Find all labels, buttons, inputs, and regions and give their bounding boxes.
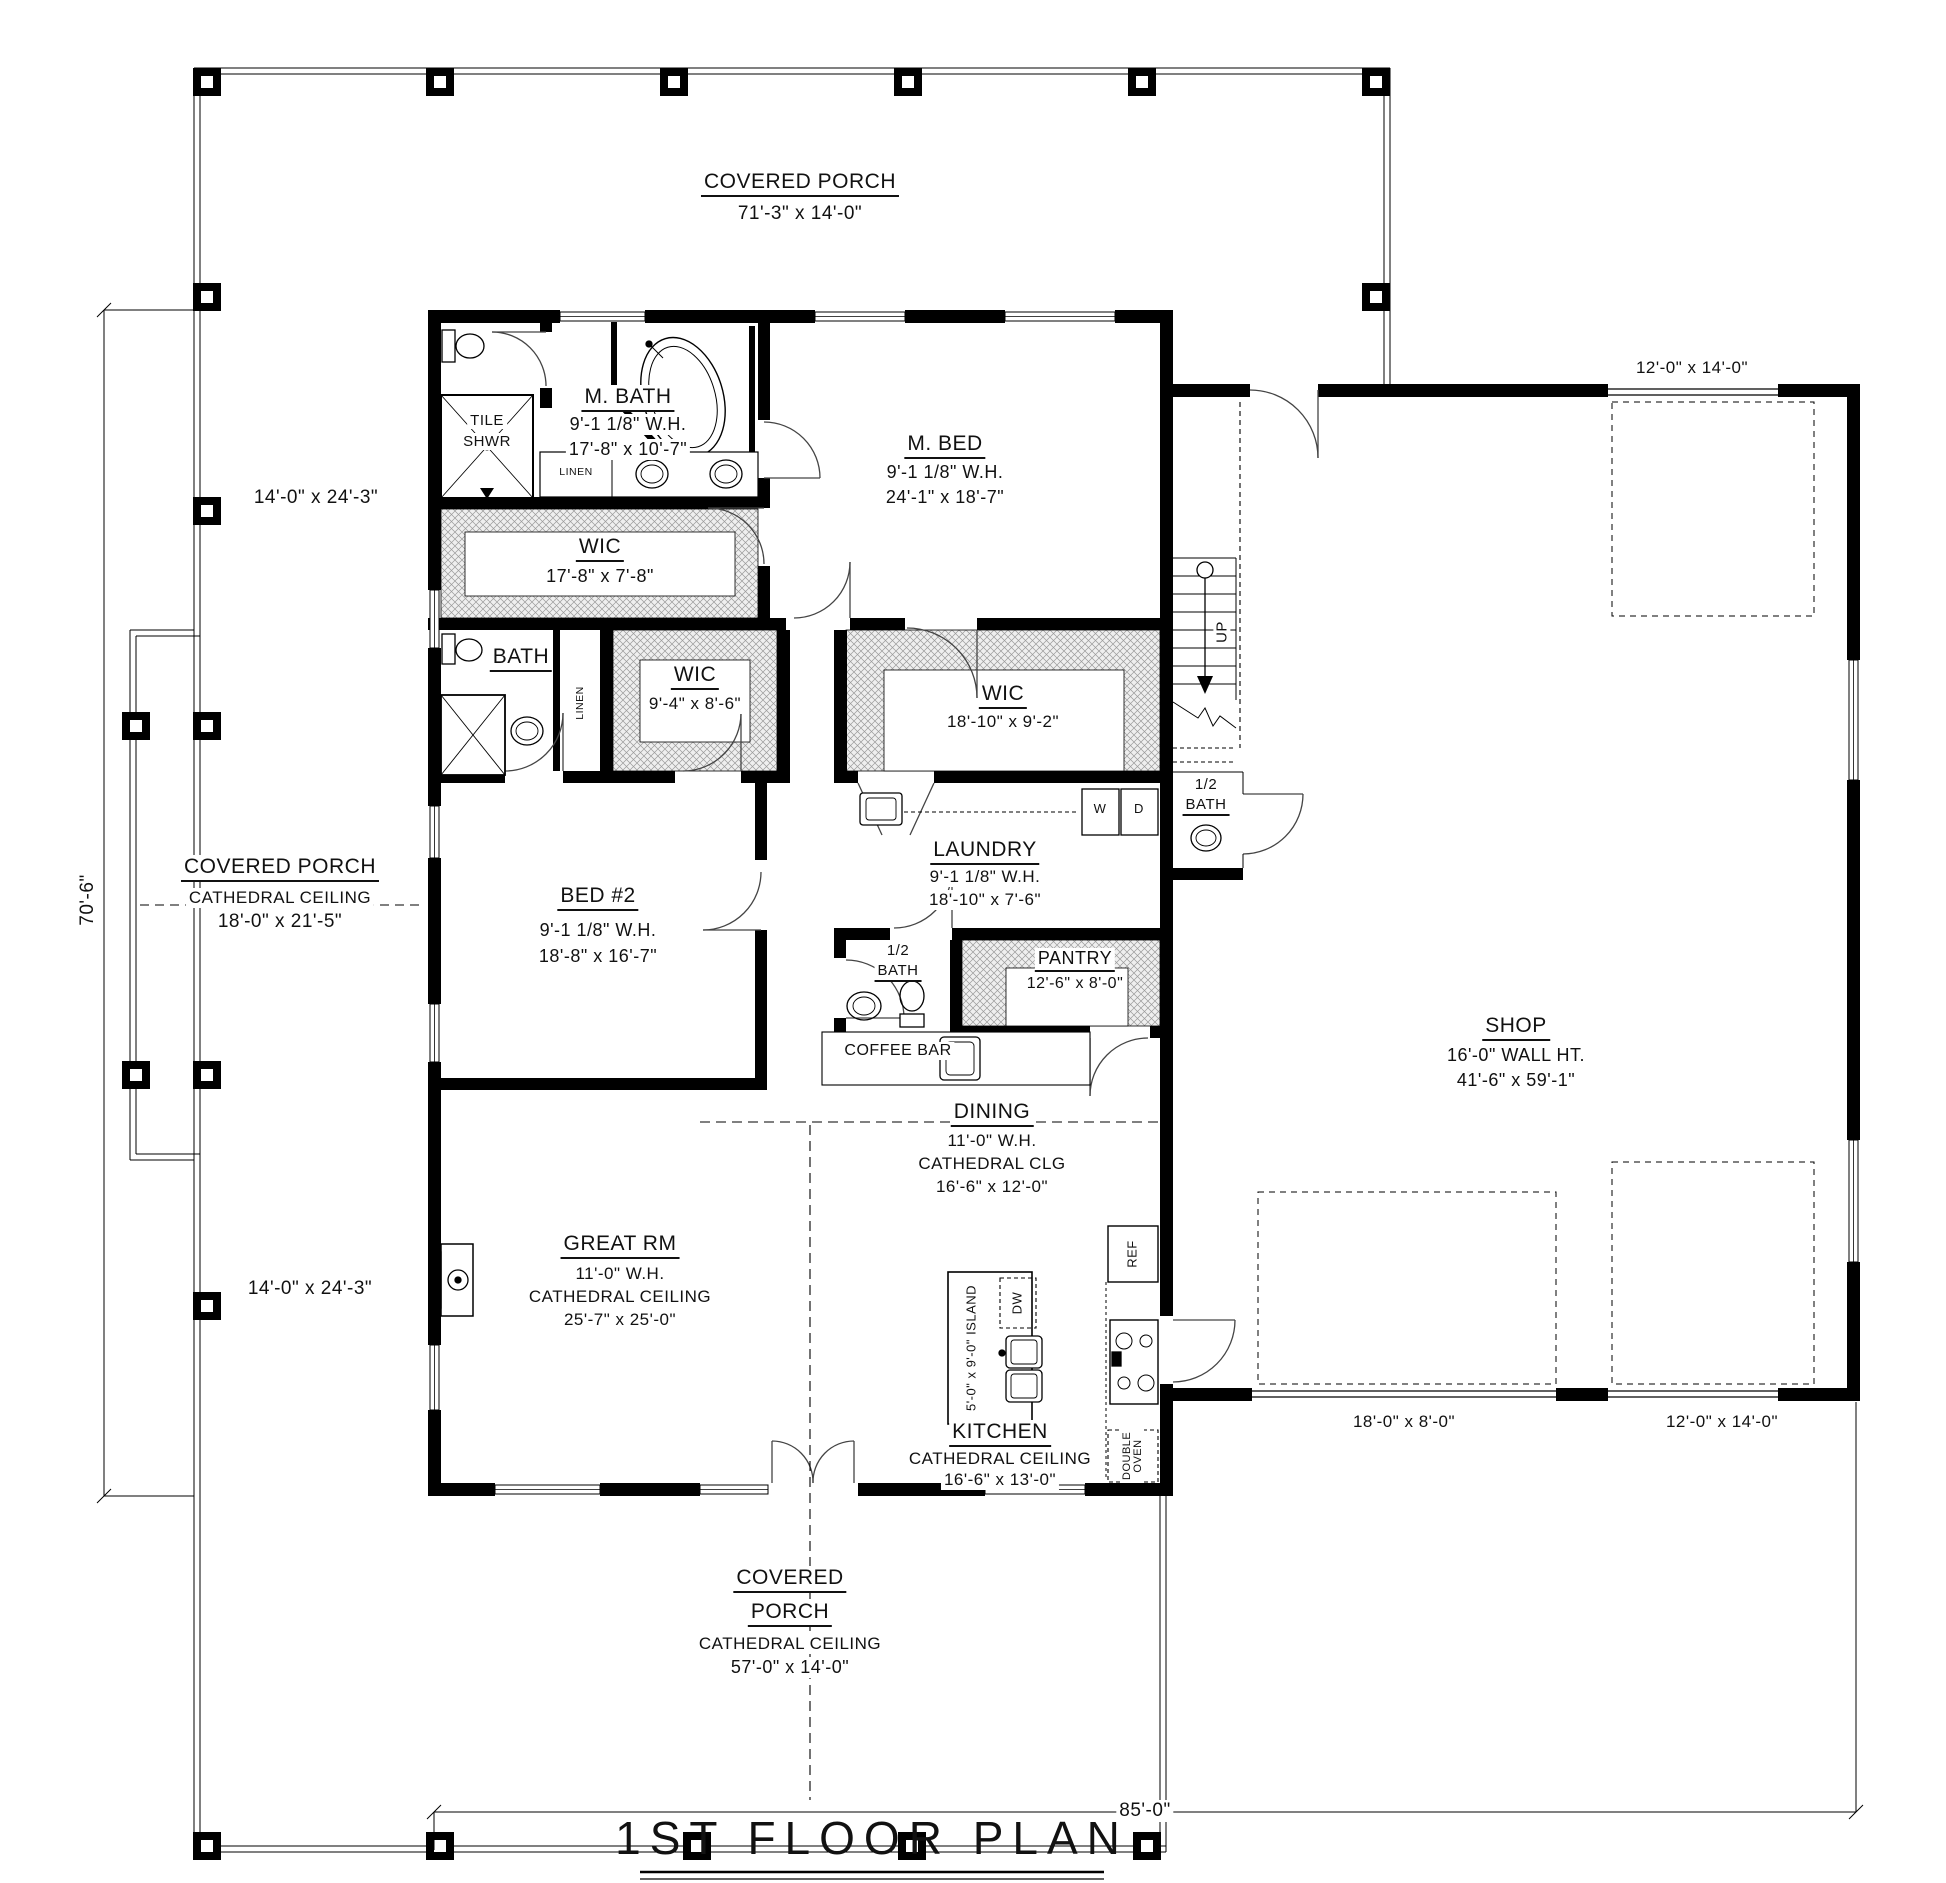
room-greatrm-name: GREAT RM	[561, 1232, 680, 1259]
room-shop-name: SHOP	[1482, 1014, 1550, 1041]
tile-shower-line2: SHWR	[460, 433, 514, 450]
porch-bottom-size: 57'-0" x 14'-0"	[728, 1657, 852, 1678]
room-bed2-wh: 9'-1 1/8" W.H.	[537, 920, 660, 941]
room-mbath-name: M. BATH	[581, 385, 674, 412]
dim-shop-door-bottom-right: 12'-0" x 14'-0"	[1663, 1412, 1781, 1432]
refrigerator-label: REF	[1126, 1237, 1141, 1271]
dim-porch-lower-left: 14'-0" x 24'-3"	[245, 1278, 375, 1300]
coffee-bar-label: COFFEE BAR	[841, 1042, 954, 1060]
room-laundry-size: 18'-10" x 7'-6"	[926, 890, 1044, 910]
room-bed2-name: BED #2	[557, 884, 638, 911]
room-shop-size: 41'-6" x 59'-1"	[1454, 1070, 1578, 1091]
room-mbath-wh: 9'-1 1/8" W.H.	[567, 414, 690, 435]
room-wic-master-name: WIC	[576, 535, 624, 562]
floor-plan-drawing	[0, 0, 1946, 1883]
room-wic3-name: WIC	[979, 682, 1027, 709]
room-dining-wh: 11'-0" W.H.	[944, 1131, 1039, 1151]
room-greatrm-wh: 11'-0" W.H.	[572, 1264, 667, 1284]
tile-shower-line1: TILE	[467, 412, 507, 429]
half-bath-main-line2: BATH	[875, 962, 922, 982]
stairs	[1173, 558, 1243, 868]
dimension-lines	[97, 303, 1863, 1879]
dim-shop-door-bottom-left: 18'-0" x 8'-0"	[1350, 1412, 1458, 1432]
room-shop-wh: 16'-0" WALL HT.	[1444, 1045, 1588, 1066]
room-kitchen-size: 16'-6" x 13'-0"	[941, 1470, 1059, 1490]
room-kitchen-ceiling: CATHEDRAL CEILING	[906, 1449, 1094, 1469]
porch-left-name: COVERED PORCH	[181, 855, 379, 882]
room-mbed-size: 24'-1" x 18'-7"	[883, 487, 1007, 508]
linen-master-label: LINEN	[556, 466, 595, 478]
dryer-label: D	[1131, 802, 1147, 817]
porch-bottom-name1: COVERED	[733, 1566, 846, 1593]
room-dining-size: 16'-6" x 12'-0"	[933, 1177, 1051, 1197]
dim-overall-depth: 70'-6"	[77, 871, 99, 928]
room-dining-name: DINING	[951, 1100, 1034, 1127]
room-wic2-size: 9'-4" x 8'-6"	[646, 694, 744, 714]
dim-shop-door-top: 12'-0" x 14'-0"	[1633, 358, 1751, 378]
porch-top-name: COVERED PORCH	[701, 170, 899, 197]
room-mbath-size: 17'-8" x 10'-7"	[566, 439, 690, 460]
room-bed2-size: 18'-8" x 16'-7"	[536, 946, 660, 967]
stairs-up-label: UP	[1213, 618, 1230, 646]
floor-plan-sheet: COVERED PORCH 71'-3" x 14'-0" 14'-0" x 2…	[0, 0, 1946, 1883]
washer-label: W	[1091, 802, 1110, 817]
half-bath-stairs-line1: 1/2	[1192, 776, 1220, 793]
porch-left-size: 18'-0" x 21'-5"	[215, 911, 345, 933]
room-dining-ceiling: CATHEDRAL CLG	[915, 1154, 1068, 1174]
room-greatrm-size: 25'-7" x 25'-0"	[561, 1310, 679, 1330]
porch-top-size: 71'-3" x 14'-0"	[735, 203, 865, 225]
room-wic2-name: WIC	[671, 663, 719, 690]
room-laundry-name: LAUNDRY	[930, 838, 1039, 865]
room-bath-name: BATH	[490, 645, 552, 672]
dishwasher-label: DW	[1011, 1289, 1026, 1318]
fixtures	[432, 322, 1221, 1482]
double-oven-label: DOUBLE OVEN	[1122, 1429, 1144, 1483]
porch-bottom-ceiling: CATHEDRAL CEILING	[696, 1634, 884, 1654]
room-wic-master-size: 17'-8" x 7'-8"	[543, 566, 657, 587]
island-label: 5'-0" x 9'-0" ISLAND	[965, 1282, 980, 1414]
room-laundry-wh: 9'-1 1/8" W.H.	[927, 867, 1044, 887]
room-mbed-wh: 9'-1 1/8" W.H.	[884, 462, 1007, 483]
half-bath-main-line1: 1/2	[884, 942, 912, 959]
linen-hall-label: LINEN	[574, 683, 586, 722]
porch-bottom-name2: PORCH	[748, 1600, 832, 1627]
room-mbed-name: M. BED	[904, 432, 985, 459]
room-pantry-name: PANTRY	[1035, 948, 1115, 972]
room-pantry-size: 12'-6" x 8'-0"	[1024, 975, 1127, 993]
garage-doors	[1252, 389, 1814, 1397]
room-wic3-size: 18'-10" x 9'-2"	[944, 712, 1062, 732]
room-greatrm-ceiling: CATHEDRAL CEILING	[526, 1287, 714, 1307]
half-bath-stairs-line2: BATH	[1183, 796, 1230, 816]
drawing-title: 1ST FLOOR PLAN	[612, 1812, 1132, 1865]
dim-porch-upper-left: 14'-0" x 24'-3"	[251, 487, 381, 509]
porch-left-ceiling: CATHEDRAL CEILING	[186, 888, 374, 908]
room-kitchen-name: KITCHEN	[949, 1420, 1051, 1447]
